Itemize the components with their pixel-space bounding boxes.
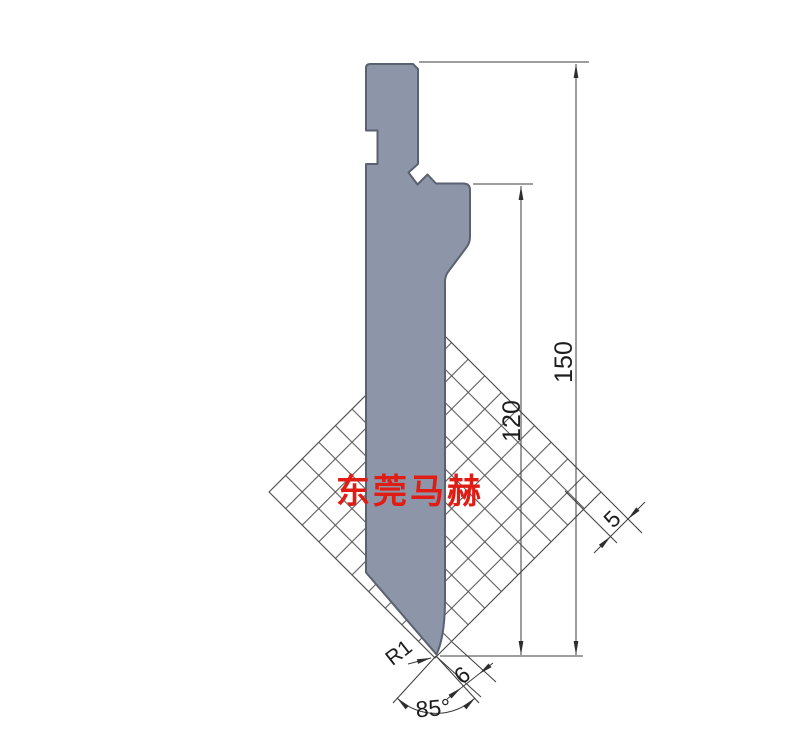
dimension-arrow-5-lower [594, 537, 611, 554]
punch-drawing-svg: 150 120 5 6 R1 [0, 0, 786, 756]
dimension-arrow-5-upper [628, 502, 645, 519]
leader-line-r1 [408, 658, 431, 664]
dimension-label-r1: R1 [381, 636, 416, 671]
dimension-tip-angle: 85° [393, 656, 479, 722]
technical-drawing-page: 150 120 5 6 R1 [0, 0, 786, 756]
dimension-label-150: 150 [550, 341, 578, 383]
dimension-label-85deg: 85° [415, 694, 452, 723]
dimension-label-120: 120 [498, 400, 526, 442]
brand-watermark-text: 东莞马赫 [336, 472, 484, 511]
